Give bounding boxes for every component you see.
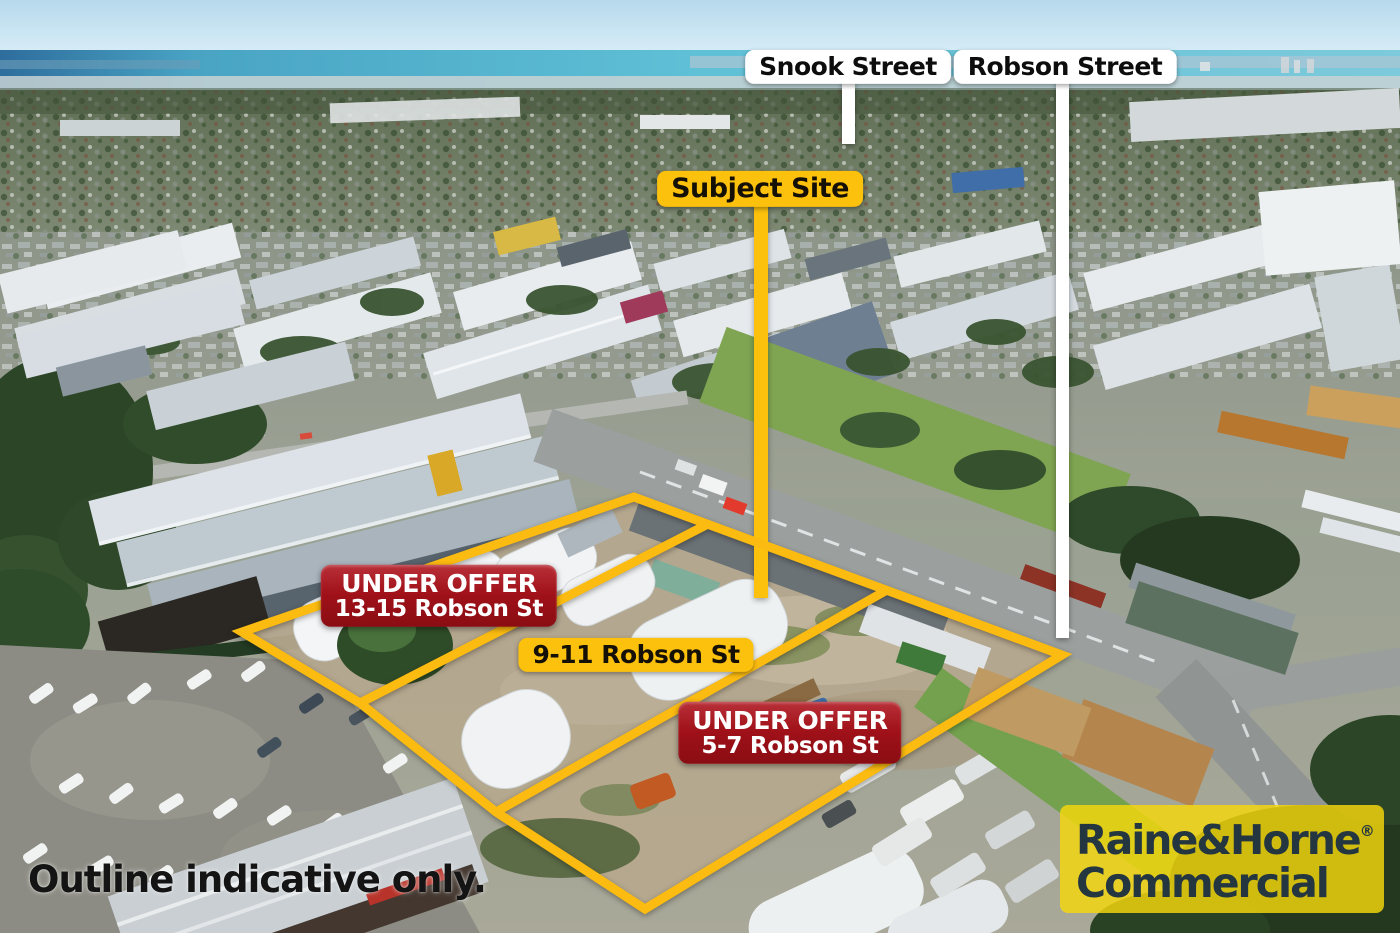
- disclaimer-text: Outline indicative only.: [28, 858, 486, 901]
- registered-trademark-symbol: ®: [1360, 822, 1375, 840]
- street-label-robson: Robson Street: [954, 50, 1177, 84]
- parcel-label-9-11: 9-11 Robson St: [518, 638, 753, 672]
- street-label-snook-text: Snook Street: [759, 54, 937, 80]
- street-label-robson-text: Robson Street: [968, 54, 1163, 80]
- agency-logo-line2: Commercial: [1076, 860, 1384, 906]
- parcel-address: 13-15 Robson St: [335, 597, 543, 621]
- aerial-photo-canvas: Snook Street Robson Street Subject Site …: [0, 0, 1400, 933]
- snook-street-pointer-line: [842, 80, 855, 144]
- agency-logo-line1: Raine&Horne®: [1076, 807, 1384, 864]
- robson-street-pointer-line: [1056, 80, 1069, 638]
- parcel-address: 9-11 Robson St: [532, 642, 739, 668]
- street-label-snook: Snook Street: [745, 50, 951, 84]
- subject-site-label-text: Subject Site: [671, 175, 849, 203]
- under-offer-label-5-7: UNDER OFFER 5-7 Robson St: [678, 702, 901, 764]
- agency-name: Raine&Horne: [1076, 816, 1360, 864]
- under-offer-status: UNDER OFFER: [692, 708, 887, 734]
- agency-logo-panel: Raine&Horne® Commercial: [1060, 805, 1384, 913]
- parcel-address: 5-7 Robson St: [701, 734, 878, 758]
- site-boundary-group: [242, 497, 1062, 909]
- site-outline-overlay: [0, 0, 1400, 933]
- subject-site-label: Subject Site: [657, 171, 863, 207]
- under-offer-status: UNDER OFFER: [341, 571, 536, 597]
- under-offer-label-13-15: UNDER OFFER 13-15 Robson St: [321, 565, 557, 627]
